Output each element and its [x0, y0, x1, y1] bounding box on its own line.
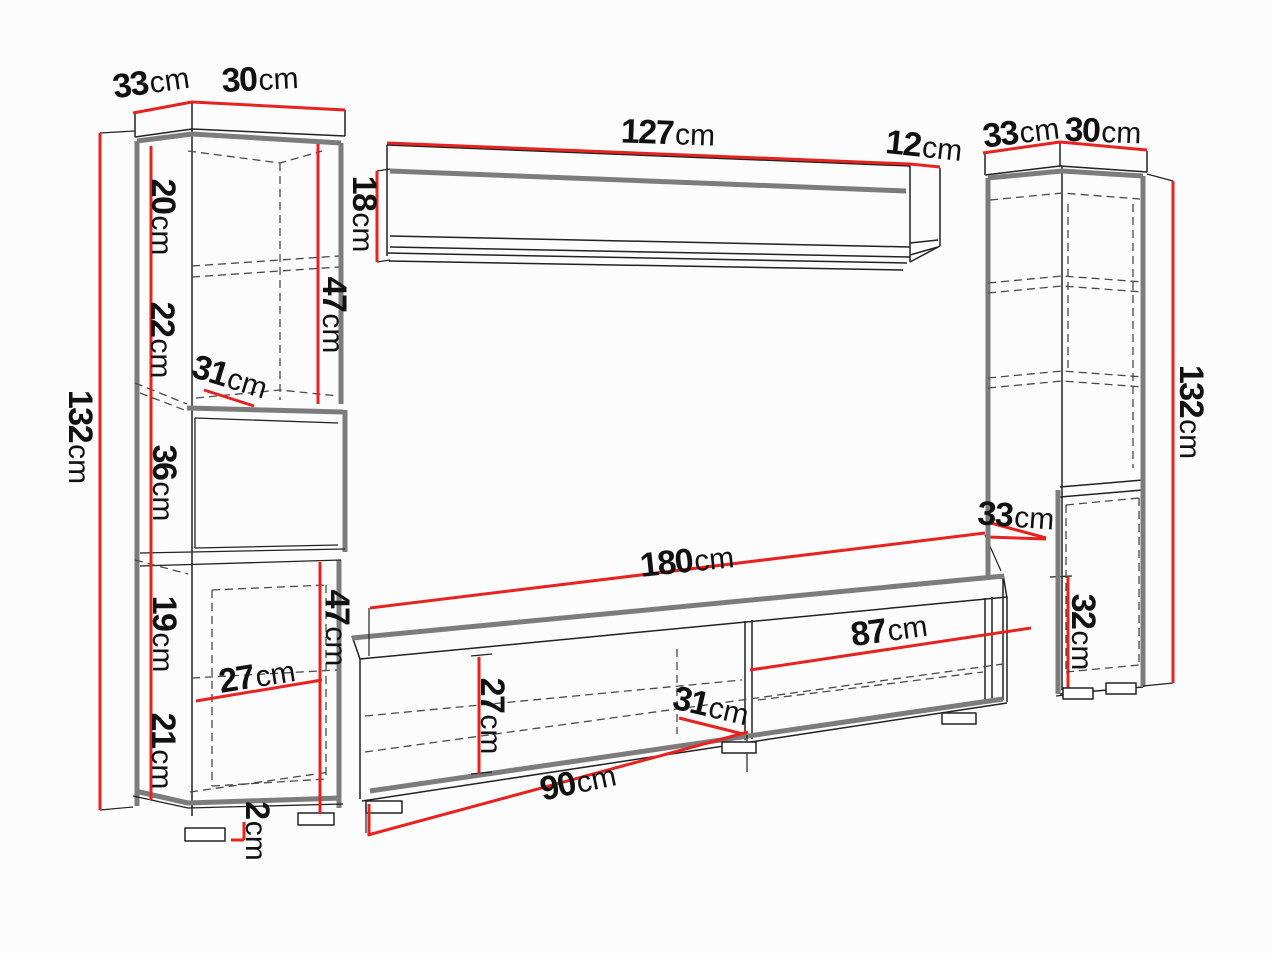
dim-shelf-height-18: 18cm — [347, 176, 381, 253]
dim-left-shelf-36: 36cm — [147, 445, 181, 522]
dim-left-upper-47: 47cm — [317, 277, 351, 354]
dim-shelf-width-127: 127cm — [620, 114, 715, 151]
dim-left-plinth-2: 2cm — [240, 801, 274, 860]
dim-shelf-depth-12: 12cm — [884, 125, 964, 167]
dim-left-shelf-20: 20cm — [146, 179, 180, 256]
furniture-dimension-diagram: 33cm 30cm 132cm 20cm 22cm 31cm 36cm 47cm… — [0, 0, 1271, 953]
wall-shelf-outline — [377, 143, 940, 270]
dim-left-height: 132cm — [63, 390, 97, 484]
dim-right-top-width: 30cm — [1064, 113, 1142, 150]
dim-left-top-width: 30cm — [221, 60, 300, 98]
dim-right-height: 132cm — [1174, 365, 1208, 459]
dim-stand-height-27: 27cm — [475, 678, 509, 755]
dim-right-lower-depth-33: 33cm — [976, 496, 1055, 535]
dim-right-lower-height-32: 32cm — [1066, 594, 1100, 671]
left-cabinet-outline — [100, 102, 345, 841]
dim-left-shelf-19: 19cm — [147, 596, 181, 673]
dim-left-shelf-21: 21cm — [146, 713, 180, 790]
dim-left-shelf-22: 22cm — [145, 302, 179, 379]
dim-left-lower-47: 47cm — [320, 590, 354, 667]
